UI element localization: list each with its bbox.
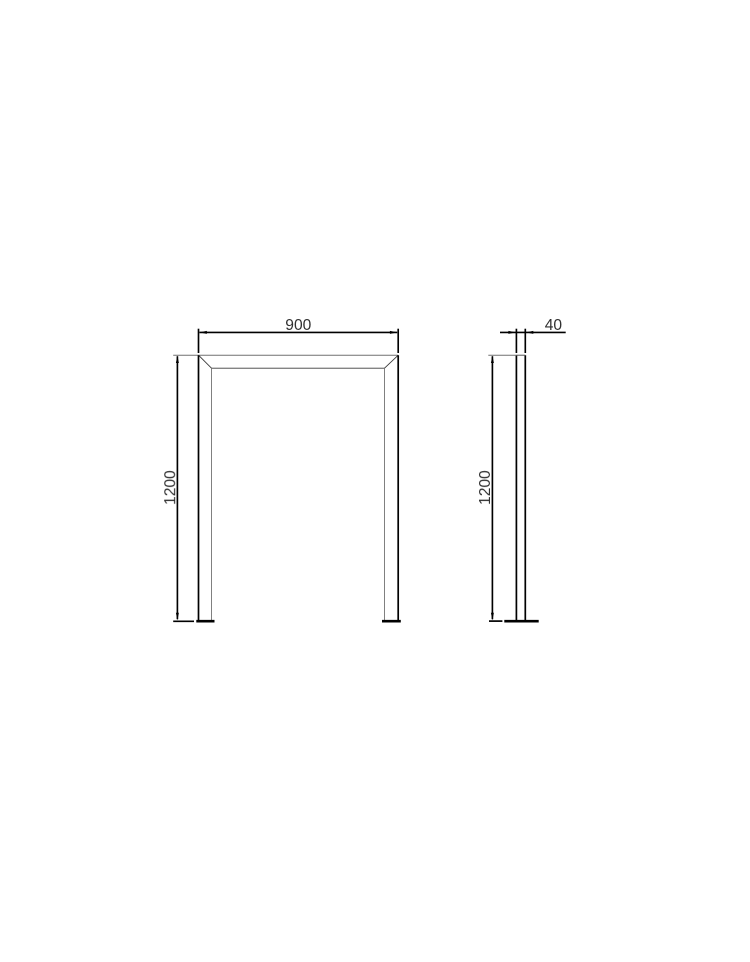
svg-text:40: 40 (545, 317, 563, 334)
svg-text:1200: 1200 (477, 470, 494, 505)
svg-text:1200: 1200 (162, 470, 179, 505)
svg-text:900: 900 (285, 317, 311, 334)
